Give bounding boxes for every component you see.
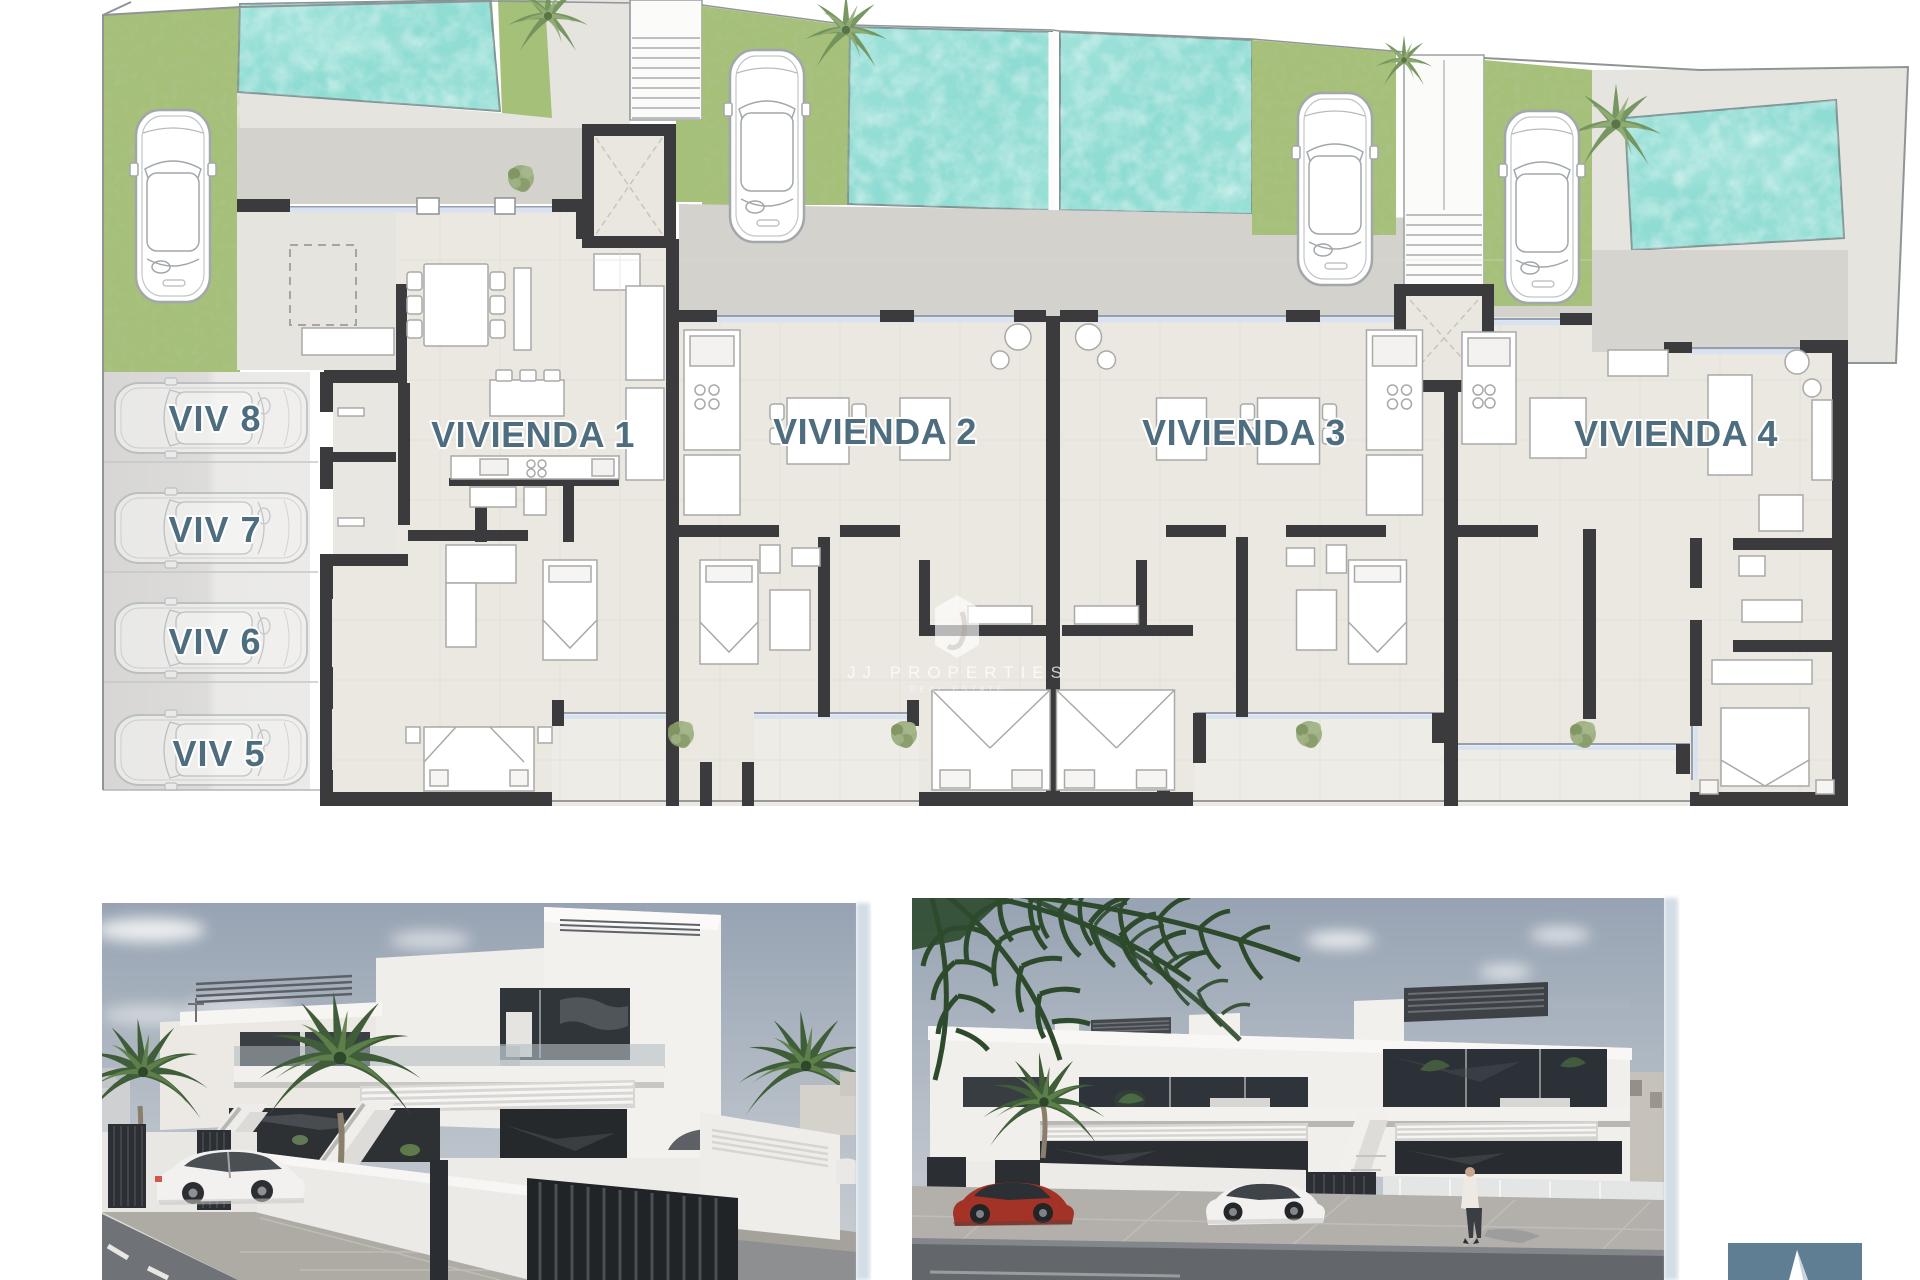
svg-text:VIVIENDA 1: VIVIENDA 1	[431, 414, 635, 455]
svg-text:VIVIENDA 2: VIVIENDA 2	[773, 411, 977, 452]
svg-text:VIV 5: VIV 5	[172, 733, 265, 774]
svg-text:VIVIENDA 4: VIVIENDA 4	[1574, 413, 1778, 454]
svg-text:REAL ESTATE: REAL ESTATE	[910, 685, 1007, 694]
svg-text:VIV 8: VIV 8	[168, 398, 261, 439]
svg-text:VIVIENDA 3: VIVIENDA 3	[1142, 412, 1346, 453]
svg-text:VIV 6: VIV 6	[168, 621, 261, 662]
svg-text:JJ PROPERTIES: JJ PROPERTIES	[847, 663, 1069, 682]
svg-text:VIV 7: VIV 7	[168, 509, 261, 550]
